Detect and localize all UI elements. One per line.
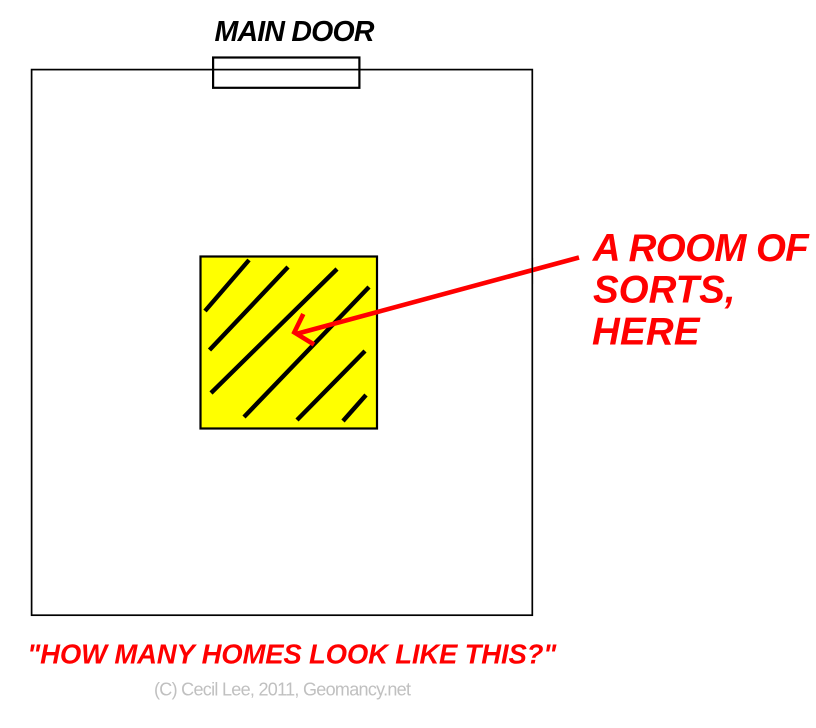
svg-text:MAIN DOOR: MAIN DOOR xyxy=(215,16,375,48)
svg-text:(C) Cecil Lee, 2011, Geomancy.: (C) Cecil Lee, 2011, Geomancy.net xyxy=(154,679,411,699)
svg-text:SORTS,: SORTS, xyxy=(593,269,736,312)
svg-text:A ROOM OF: A ROOM OF xyxy=(592,227,810,270)
svg-text:HERE: HERE xyxy=(592,310,701,353)
svg-text:"HOW MANY HOMES LOOK LIKE THIS: "HOW MANY HOMES LOOK LIKE THIS?" xyxy=(27,639,557,670)
